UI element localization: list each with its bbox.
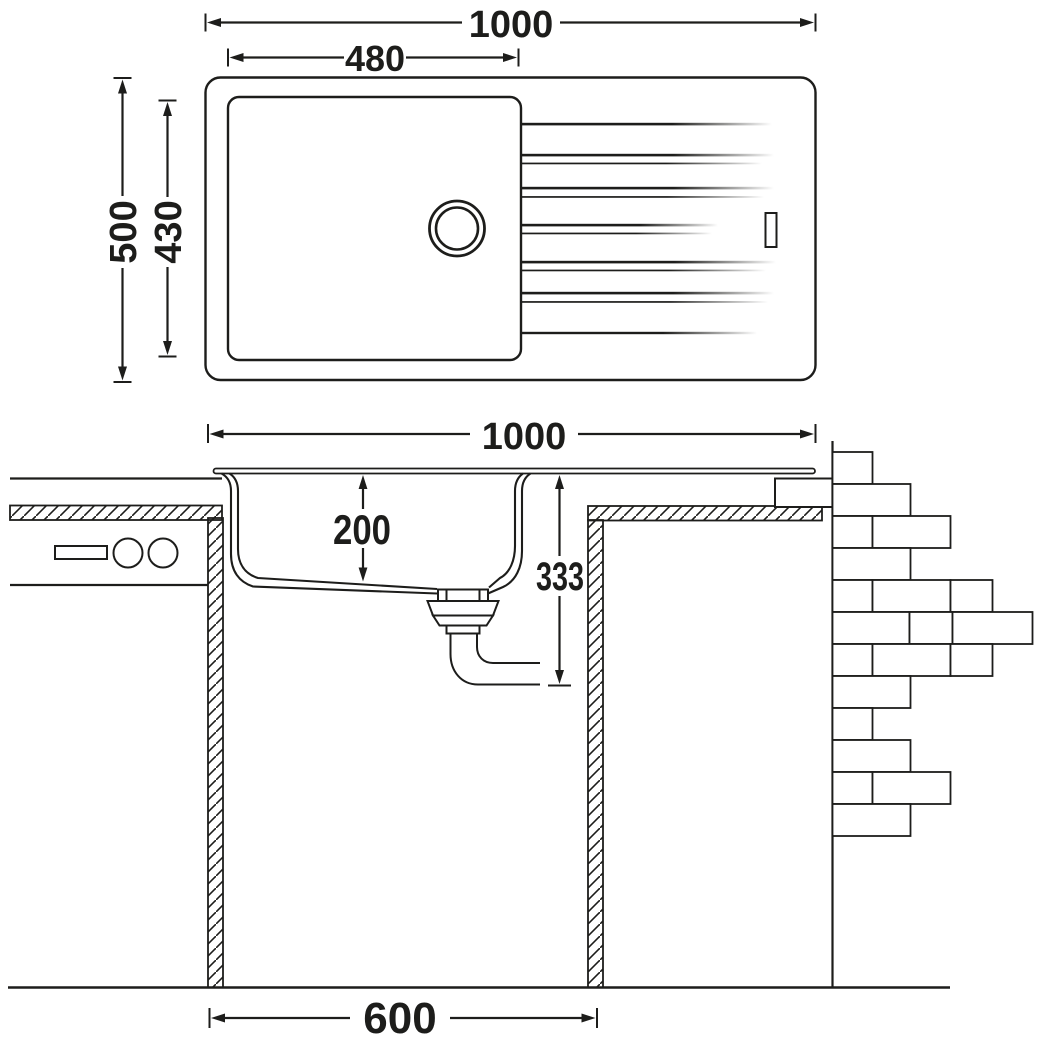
brick — [833, 452, 873, 484]
dimension-label-installation-depth: 333 — [536, 555, 584, 599]
brick — [833, 516, 873, 548]
drain-pipe-outer-line — [451, 634, 541, 685]
arrowhead-right-icon — [582, 1014, 596, 1023]
drainer-groove-line — [522, 233, 712, 235]
brick — [833, 580, 873, 612]
arrowhead-down-icon — [359, 568, 368, 582]
drainer-groove-line — [522, 261, 776, 264]
drain-inner-circle — [436, 208, 478, 250]
brick — [873, 644, 951, 676]
arrowhead-down-icon — [163, 341, 172, 355]
brick — [833, 772, 873, 804]
drainer-groove-line — [522, 332, 757, 334]
drainer-groove-line — [522, 163, 762, 165]
dimension-cabinet-width: 600 — [210, 994, 598, 1043]
appliance-front — [10, 539, 208, 586]
brick — [873, 516, 951, 548]
arrowhead-left-icon — [211, 1014, 225, 1023]
arrowhead-left-icon — [207, 18, 221, 27]
dimension-label-cabinet-width: 600 — [363, 994, 436, 1043]
brick — [910, 612, 953, 644]
cabinet-wall-left — [208, 518, 223, 988]
brick — [833, 548, 911, 580]
drainer-groove-line — [522, 154, 774, 157]
appliance-knob — [149, 539, 178, 568]
drain-pipe-inner-line — [477, 634, 540, 664]
accessory-slot — [766, 213, 777, 247]
bricks — [833, 452, 1033, 836]
dimension-label-bowl-depth-top: 430 — [148, 200, 190, 263]
countertop-section-right — [588, 506, 822, 521]
drain-pipe — [451, 634, 541, 685]
drainer-groove-line — [522, 123, 772, 126]
arrowhead-up-icon — [359, 475, 368, 489]
drainer-groove-line — [522, 187, 774, 190]
appliance-knob — [114, 539, 143, 568]
drain-collar — [447, 626, 480, 634]
dimension-label-overall-width-top: 1000 — [469, 4, 554, 46]
brick — [951, 580, 993, 612]
drainer-grooves — [522, 123, 776, 334]
arrowhead-right-icon — [503, 53, 517, 62]
brick — [833, 740, 911, 772]
countertop-section-left — [10, 506, 222, 521]
drainer-groove-line — [522, 270, 766, 272]
drain-body-lower — [433, 616, 493, 626]
brick-wall — [833, 441, 1033, 988]
dimension-label-overall-width-section: 1000 — [482, 416, 567, 458]
arrowhead-right-icon — [800, 430, 814, 439]
drain-body-upper — [428, 601, 499, 616]
sink-section-view — [8, 441, 1033, 988]
bowl-wall-outer-right — [488, 474, 531, 594]
brick — [873, 580, 951, 612]
arrowhead-up-icon — [163, 102, 172, 116]
drainer-groove-line — [522, 224, 718, 227]
sink-rim — [214, 469, 816, 474]
arrowhead-down-icon — [555, 670, 564, 684]
dimension-bowl-depth-top: 430 — [148, 101, 190, 357]
arrowhead-up-icon — [118, 80, 127, 94]
dimension-label-overall-depth: 500 — [103, 200, 145, 263]
brick — [833, 612, 910, 644]
arrowhead-left-icon — [210, 430, 224, 439]
appliance-handle-slot — [55, 546, 107, 559]
countertop-left — [10, 479, 222, 521]
dimension-overall-depth: 500 — [103, 78, 145, 382]
brick — [873, 772, 951, 804]
drainer-groove-line — [522, 196, 764, 198]
arrowhead-up-icon — [555, 475, 564, 489]
brick — [833, 804, 911, 836]
arrowhead-down-icon — [118, 367, 127, 381]
drainer-groove-line — [522, 301, 768, 303]
sink-technical-drawing: 1000 480 500 430 — [0, 0, 1042, 1048]
dimension-label-bowl-depth-section: 200 — [333, 506, 391, 553]
brick — [833, 676, 911, 708]
dimension-overall-width-section: 1000 — [208, 416, 816, 458]
drain-circles — [430, 201, 485, 256]
dimension-overall-width-top: 1000 — [206, 4, 816, 46]
technical-drawing-page: 1000 480 500 430 — [0, 0, 1042, 1048]
arrowhead-right-icon — [800, 18, 814, 27]
brick — [833, 708, 873, 740]
sink-top-view — [206, 78, 816, 381]
brick — [833, 484, 911, 516]
drain-outer-circle — [430, 201, 485, 256]
dimension-bowl-depth-section: 200 — [333, 475, 391, 582]
dimension-label-bowl-width: 480 — [345, 38, 405, 79]
cabinet-wall-right — [588, 520, 603, 988]
brick — [953, 612, 1033, 644]
drainer-groove-line — [522, 292, 774, 295]
brick — [951, 644, 993, 676]
dimension-installation-depth: 333 — [536, 475, 584, 686]
brick — [833, 644, 873, 676]
wall-batten — [775, 479, 833, 508]
drain-assembly — [428, 590, 541, 685]
